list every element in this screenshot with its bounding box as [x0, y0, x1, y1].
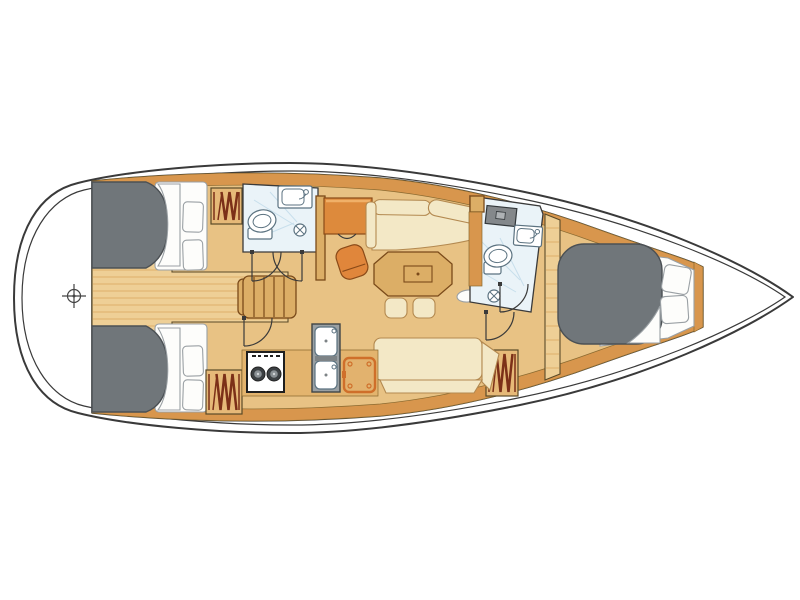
double-sink-icon [312, 324, 340, 392]
nav-desk [324, 198, 372, 234]
bow-bulkhead [694, 262, 703, 332]
washbasin-icon [513, 225, 542, 247]
aft-cabin-starboard [92, 324, 207, 412]
head-cabinet [470, 196, 484, 212]
settee-front-edge [380, 380, 482, 393]
settee-seat [374, 338, 482, 380]
pillow [661, 264, 692, 295]
stool [385, 298, 407, 318]
shower-drain-icon [294, 224, 306, 236]
pillow [182, 346, 203, 377]
double-berth [92, 326, 168, 412]
fridge-icon [342, 358, 375, 392]
stove-icon [247, 352, 284, 392]
salon-table [374, 252, 452, 296]
forward-head [469, 196, 543, 312]
companionway-steps [238, 276, 296, 318]
hanging-locker-aft-port [211, 188, 242, 224]
boat-plan [0, 0, 800, 600]
pillow [660, 295, 689, 324]
boat-plan-canvas [0, 0, 800, 600]
head-counter [469, 212, 482, 286]
hanging-locker-aft-starboard [206, 370, 242, 414]
aft-cabin-port [92, 182, 207, 270]
pillow [182, 240, 203, 271]
shower-drain-icon [488, 290, 500, 302]
double-berth [92, 182, 168, 268]
settee-armrest [366, 202, 376, 248]
stool [413, 298, 435, 318]
washbasin-icon [278, 186, 312, 208]
pillow [182, 380, 203, 411]
pillow [182, 202, 203, 233]
deck-hatch-icon [485, 205, 517, 226]
aft-head [243, 184, 318, 252]
settee-back-cushion [373, 199, 431, 215]
